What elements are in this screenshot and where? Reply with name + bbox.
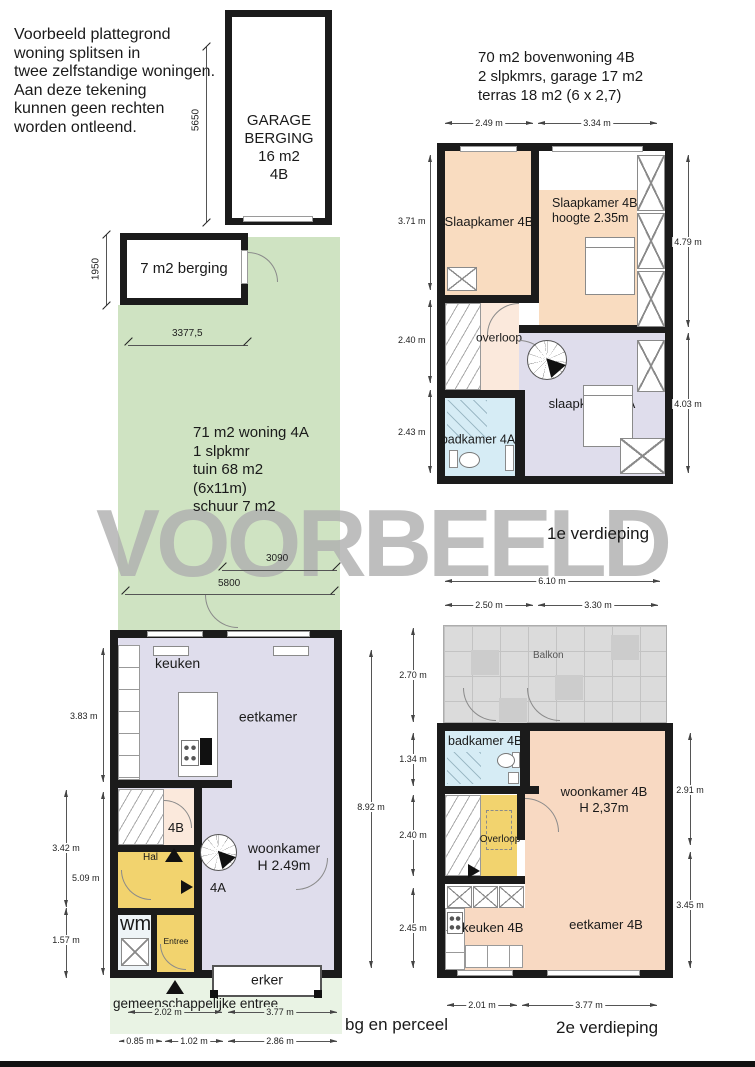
gf-kitchen-cabinets — [118, 645, 140, 780]
f2-dim-right2: 3.45 m — [674, 900, 706, 910]
garden-dim-lower-line — [125, 594, 335, 595]
f1-wardrobe-a1 — [637, 340, 665, 392]
f1-badkamer-label: badkamer 4A — [441, 432, 515, 447]
f2-cabinet-2 — [473, 886, 498, 908]
f2-sink — [508, 772, 519, 784]
first-floor-title: 1e verdieping — [547, 524, 649, 545]
f2-wall-overloop-right — [517, 790, 525, 840]
f1-stairs — [445, 303, 481, 390]
f2-dim-right1: 2.91 m — [674, 785, 706, 795]
f1-wardrobe-3 — [637, 271, 665, 327]
f1-wall-h3 — [437, 390, 525, 398]
f2-stair-arrow — [468, 864, 480, 878]
f1-wardrobe-2 — [637, 213, 665, 269]
garden-dim-upper-line — [222, 570, 337, 571]
f2-dim-left3: 2.40 m — [397, 830, 429, 840]
f2-shower — [447, 752, 481, 784]
f2-dim-left2: 1.34 m — [397, 754, 429, 764]
page-bottom-edge — [0, 1061, 755, 1067]
f2-cabinet-1 — [447, 886, 472, 908]
unit4a-info-text: 71 m2 woning 4A 1 slpkmr tuin 68 m2 (6x1… — [193, 424, 309, 517]
f1-spiral-stair — [527, 340, 567, 380]
gf-hal-label: Hal — [143, 852, 158, 864]
berging-dimh-label: 3377,5 — [172, 328, 203, 339]
f1-dim-left2-line — [430, 300, 431, 383]
gf-dim-286: 2.86 m — [264, 1036, 296, 1046]
gf-erker-corner-right — [314, 990, 322, 998]
f1-slaapkamer-b-right-label: Slaapkamer 4B hoogte 2.35m — [552, 196, 637, 227]
berging-dimv-label: 1950 — [91, 258, 102, 280]
gf-dim-157: 1.57 m — [50, 935, 82, 945]
gf-dim-383-line — [103, 648, 104, 782]
f1-wc-bowl — [459, 452, 480, 468]
second-floor-title: 2e verdieping — [556, 1018, 658, 1039]
gf-window-2 — [227, 631, 310, 637]
gf-window-1 — [147, 631, 203, 637]
f2-dim-top1: 2.50 m — [473, 600, 505, 610]
gf-dim-202: 2.02 m — [152, 1007, 184, 1017]
gf-keuken-label: keuken — [155, 655, 200, 672]
berging-dimh-line — [128, 345, 248, 346]
garage-label: GARAGE BERGING 16 m2 4B — [244, 112, 313, 184]
gf-dim-342: 3.42 m — [50, 843, 82, 853]
gf-stove — [181, 740, 199, 766]
f1-dim-left1-line — [430, 155, 431, 290]
f2-balkon-cell-4 — [499, 698, 527, 723]
f1-wardrobe-1 — [637, 155, 665, 211]
f1-closet-left — [447, 267, 477, 291]
f2-cabinet-3 — [499, 886, 524, 908]
f1-dim-bottom: 6.10 m — [536, 576, 568, 586]
gf-dim-102: 1.02 m — [178, 1036, 210, 1046]
f2-overloop-label: Overloop — [480, 834, 521, 846]
berging-dimv-line — [106, 235, 107, 305]
garage-dim-line — [206, 47, 207, 222]
f2-kitchen-counter-bottom — [465, 945, 523, 968]
common-entrance-label: gemeenschappelijke entree — [113, 996, 278, 1012]
gf-window-sill-2 — [273, 646, 309, 656]
berging-door — [241, 250, 248, 284]
f2-wc-bowl — [497, 753, 515, 768]
floorplan-canvas: Voorbeeld plattegrond woning splitsen in… — [0, 0, 755, 1067]
gf-washing-machine — [121, 938, 149, 966]
ground-floor-title: bg en perceel — [345, 1015, 448, 1036]
disclaimer-text: Voorbeeld plattegrond woning splitsen in… — [14, 26, 215, 137]
f1-dim-right1: 4.79 m — [672, 237, 704, 247]
gf-hal-arrow-right — [181, 880, 193, 894]
f2-balkon-label: Balkon — [533, 650, 564, 662]
gf-dim-892: 8.92 m — [355, 802, 387, 812]
f1-bed-b — [585, 237, 635, 295]
f2-kitchen-sink — [447, 912, 463, 934]
f2-dim-left1: 2.70 m — [397, 670, 429, 680]
f1-window-2 — [552, 146, 643, 152]
f1-dim-left3-line — [430, 390, 431, 473]
gf-wall-keuken — [110, 780, 232, 788]
f2-dim-right2-line — [690, 852, 691, 968]
f1-slaapkamer-b-left-label: Slaapkamer 4B — [445, 214, 534, 230]
f1-wall-h1 — [437, 295, 539, 303]
gf-dim-509-line — [103, 792, 104, 975]
f2-window-2 — [547, 970, 640, 976]
gf-erker-label: erker — [251, 971, 283, 988]
f2-dim-top2: 3.30 m — [582, 600, 614, 610]
f2-balkon-cell-1 — [471, 650, 499, 675]
gf-4a-label: 4A — [210, 880, 226, 896]
gf-dim-377: 3.77 m — [264, 1007, 296, 1017]
f1-window-1 — [460, 146, 517, 152]
gf-wall-vert — [194, 780, 202, 978]
f1-dim-left3: 2.43 m — [398, 427, 426, 437]
f1-sink — [505, 445, 514, 471]
garden-dim-lower-label: 5800 — [218, 578, 240, 589]
gf-dim-383: 3.83 m — [70, 711, 98, 721]
gf-stairs — [118, 789, 164, 845]
f2-dim-bottom1: 2.01 m — [466, 1000, 498, 1010]
gf-hal-arrow-up — [165, 848, 183, 862]
gf-oven — [200, 738, 212, 765]
f2-wall-badkamer-right — [520, 723, 530, 786]
garage-door — [243, 216, 313, 222]
gf-stair-label: 4B — [168, 820, 184, 836]
f1-dim-left1: 3.71 m — [398, 216, 426, 226]
f2-balkon-cell-3 — [611, 635, 639, 660]
f1-dim-top2: 3.34 m — [581, 118, 613, 128]
f2-keuken-label: keuken 4B — [462, 920, 523, 936]
f1-dim-right2: 4.03 m — [672, 399, 704, 409]
berging-label: 7 m2 berging — [140, 260, 228, 278]
gf-dim-509: 5.09 m — [72, 873, 100, 883]
f1-wall-v3 — [515, 390, 525, 476]
gf-spiral-stair — [200, 834, 237, 871]
gf-wm-label: wm — [120, 912, 151, 936]
gf-eetkamer-label: eetkamer — [239, 708, 297, 725]
f2-wall-overloop-bottom — [437, 876, 525, 884]
f2-eetkamer-label: eetkamer 4B — [569, 917, 643, 933]
f1-dim-top1: 2.49 m — [473, 118, 505, 128]
f2-badkamer-label: badkamer 4B — [448, 734, 522, 749]
f2-woonkamer-label: woonkamer 4B H 2,37m — [561, 784, 648, 816]
f1-wardrobe-a2 — [620, 438, 665, 474]
f1-dim-left2: 2.40 m — [398, 335, 426, 345]
f2-window-1 — [457, 970, 513, 976]
f2-living-space — [525, 731, 665, 970]
garden-dim-upper-label: 3090 — [266, 553, 288, 564]
f2-dim-left4: 2.45 m — [397, 923, 429, 933]
gf-dim-085: 0.85 m — [124, 1036, 156, 1046]
gf-wall-hal-top — [110, 845, 202, 852]
unit4b-header: 70 m2 bovenwoning 4B 2 slpkmrs, garage 1… — [478, 48, 643, 105]
garage-dim-label: 5650 — [191, 109, 202, 131]
f2-dim-bottom2: 3.77 m — [573, 1000, 605, 1010]
gf-entrance-arrow — [166, 980, 184, 994]
f1-wc-tank — [449, 450, 458, 468]
